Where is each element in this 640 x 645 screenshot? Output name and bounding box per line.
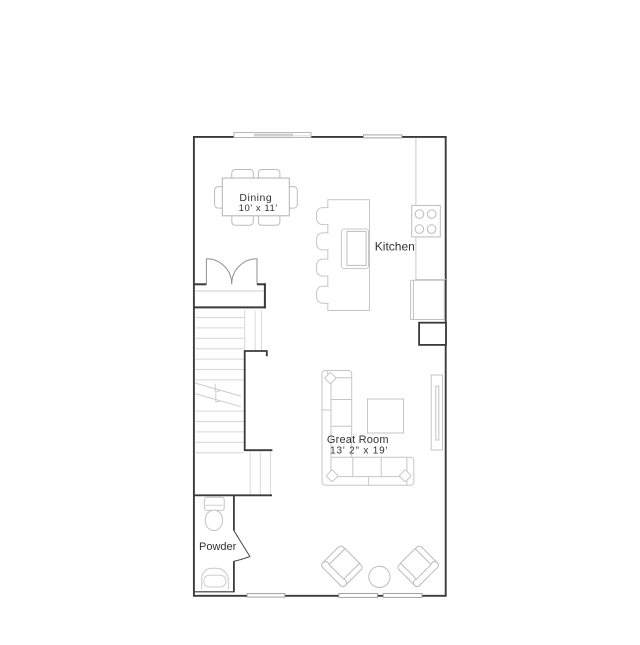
svg-text:Powder: Powder xyxy=(199,541,237,553)
svg-text:10' x 11': 10' x 11' xyxy=(239,203,278,214)
svg-text:Great Room: Great Room xyxy=(327,434,389,446)
svg-text:Kitchen: Kitchen xyxy=(375,240,415,254)
svg-text:13' 2" x 19': 13' 2" x 19' xyxy=(330,446,388,457)
